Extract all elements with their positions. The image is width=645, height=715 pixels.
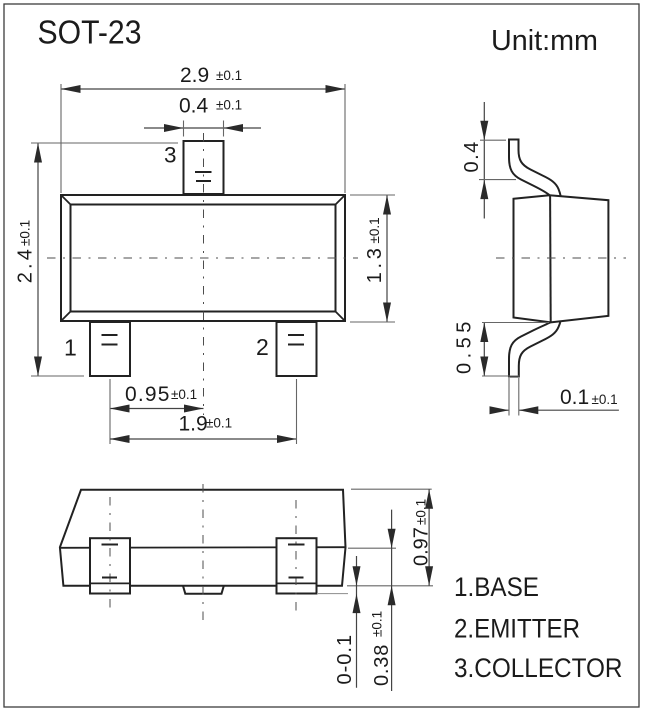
svg-text:2.9: 2.9: [180, 64, 209, 87]
svg-text:±0.1: ±0.1: [171, 387, 197, 402]
svg-text:±0.1: ±0.1: [414, 499, 429, 525]
svg-text:1: 1: [64, 334, 77, 360]
svg-text:0.4: 0.4: [461, 140, 483, 172]
svg-text:±0.1: ±0.1: [216, 68, 242, 83]
svg-text:1.BASE: 1.BASE: [454, 572, 539, 602]
svg-text:0.95: 0.95: [125, 383, 171, 406]
svg-text:±0.1: ±0.1: [216, 98, 242, 113]
svg-text:±0.1: ±0.1: [18, 220, 33, 246]
svg-text:0.55: 0.55: [454, 317, 476, 374]
svg-text:±0.1: ±0.1: [592, 392, 618, 407]
svg-text:2.EMITTER: 2.EMITTER: [454, 614, 580, 644]
svg-text:1.3: 1.3: [364, 244, 386, 283]
svg-text:±0.1: ±0.1: [370, 611, 385, 637]
svg-text:3: 3: [164, 142, 177, 167]
svg-text:0-0.1: 0-0.1: [334, 634, 356, 685]
svg-text:0.1: 0.1: [560, 386, 589, 409]
svg-text:2.4: 2.4: [15, 246, 37, 283]
svg-text:2: 2: [256, 334, 269, 360]
svg-text:±0.1: ±0.1: [206, 416, 232, 431]
svg-text:0.4: 0.4: [179, 94, 209, 117]
svg-text:1.9: 1.9: [179, 413, 208, 436]
svg-text:0.38: 0.38: [371, 644, 393, 686]
svg-text:±0.1: ±0.1: [367, 217, 382, 243]
svg-text:SOT-23: SOT-23: [38, 15, 142, 52]
svg-text:Unit:mm: Unit:mm: [491, 25, 598, 57]
svg-text:3.COLLECTOR: 3.COLLECTOR: [454, 653, 623, 683]
